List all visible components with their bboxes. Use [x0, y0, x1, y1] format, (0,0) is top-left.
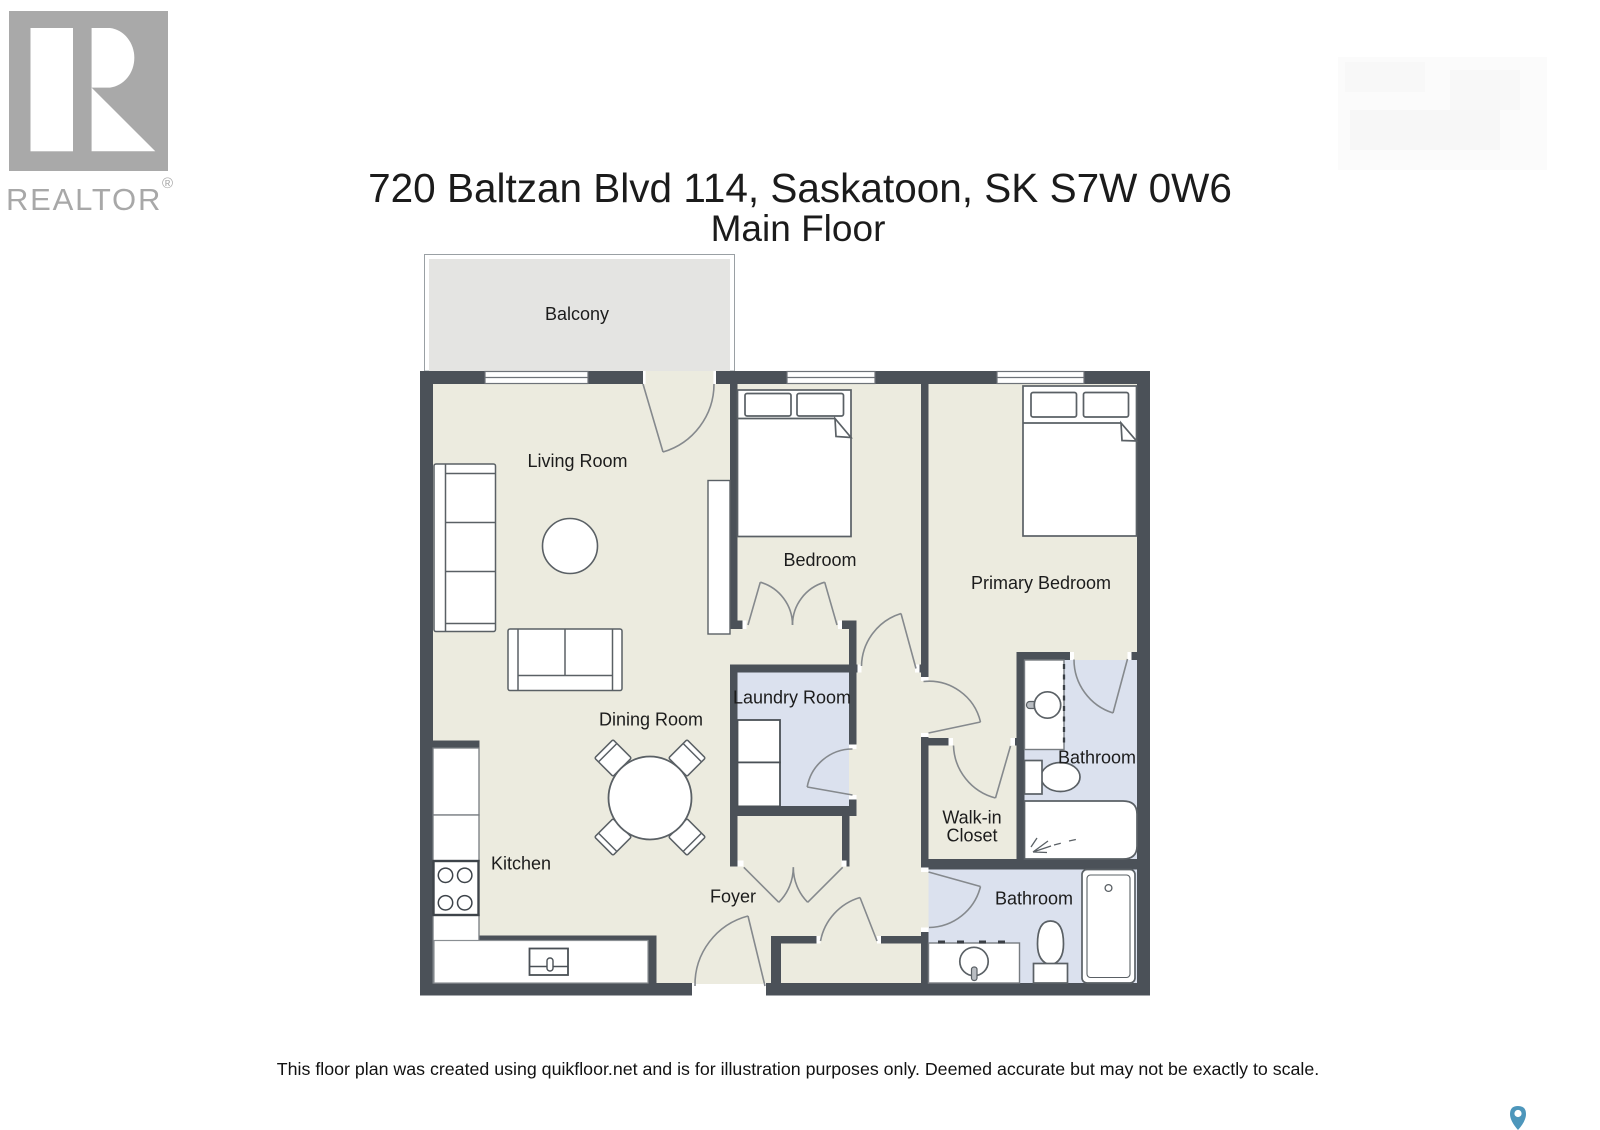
svg-text:Living Room: Living Room — [527, 451, 627, 471]
svg-text:720 Baltzan Blvd 114, Saskatoo: 720 Baltzan Blvd 114, Saskatoon, SK S7W … — [368, 165, 1232, 211]
svg-text:Closet: Closet — [946, 826, 997, 846]
svg-text:REALTOR: REALTOR — [6, 182, 162, 217]
svg-text:This floor plan was created us: This floor plan was created using quikfl… — [277, 1059, 1319, 1079]
svg-text:Laundry Room: Laundry Room — [733, 688, 851, 708]
svg-text:Foyer: Foyer — [710, 887, 756, 907]
svg-text:Bathroom: Bathroom — [995, 889, 1073, 909]
svg-text:Walk-in: Walk-in — [942, 808, 1001, 828]
svg-text:Bathroom: Bathroom — [1058, 748, 1136, 768]
svg-text:Primary Bedroom: Primary Bedroom — [971, 573, 1111, 593]
svg-text:Kitchen: Kitchen — [491, 854, 551, 874]
svg-text:Balcony: Balcony — [545, 304, 609, 324]
svg-text:Dining Room: Dining Room — [599, 710, 703, 730]
svg-text:Main Floor: Main Floor — [711, 208, 886, 249]
svg-text:®: ® — [162, 175, 173, 192]
svg-text:Bedroom: Bedroom — [783, 550, 856, 570]
